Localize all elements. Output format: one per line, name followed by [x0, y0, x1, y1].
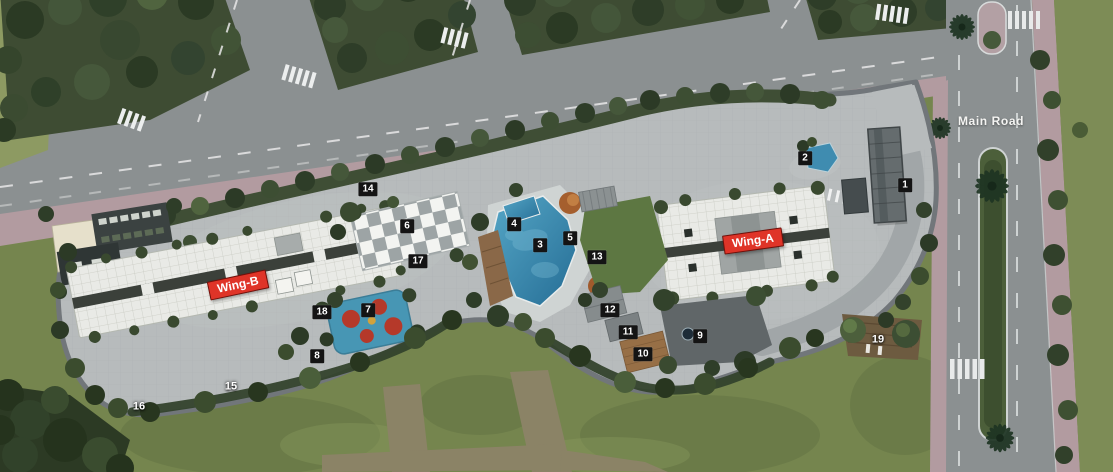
- site-marker-15: 15: [225, 381, 237, 394]
- site-marker-14: 14: [358, 182, 377, 196]
- wing-a-label: Wing-A: [722, 227, 784, 254]
- site-marker-6: 6: [400, 219, 414, 233]
- site-marker-13: 13: [587, 250, 606, 264]
- site-marker-8: 8: [310, 349, 324, 363]
- site-marker-5: 5: [563, 231, 577, 245]
- site-marker-9: 9: [693, 329, 707, 343]
- site-marker-1: 1: [898, 178, 912, 192]
- wing-b-label: Wing-B: [207, 269, 270, 300]
- site-master-plan: Main Road Wing-B Wing-A 1234567891011121…: [0, 0, 1113, 472]
- site-marker-10: 10: [633, 347, 652, 361]
- site-marker-18: 18: [312, 305, 331, 319]
- site-marker-16: 16: [133, 401, 145, 414]
- main-road-label: Main Road: [958, 114, 1024, 128]
- site-marker-4: 4: [507, 217, 521, 231]
- site-marker-3: 3: [533, 238, 547, 252]
- site-marker-7: 7: [361, 303, 375, 317]
- site-marker-11: 11: [619, 325, 638, 339]
- site-marker-17: 17: [408, 254, 427, 268]
- site-marker-2: 2: [798, 151, 812, 165]
- site-marker-12: 12: [600, 303, 619, 317]
- annotation-layer: Main Road Wing-B Wing-A 1234567891011121…: [0, 0, 1113, 472]
- site-marker-19: 19: [872, 334, 884, 347]
